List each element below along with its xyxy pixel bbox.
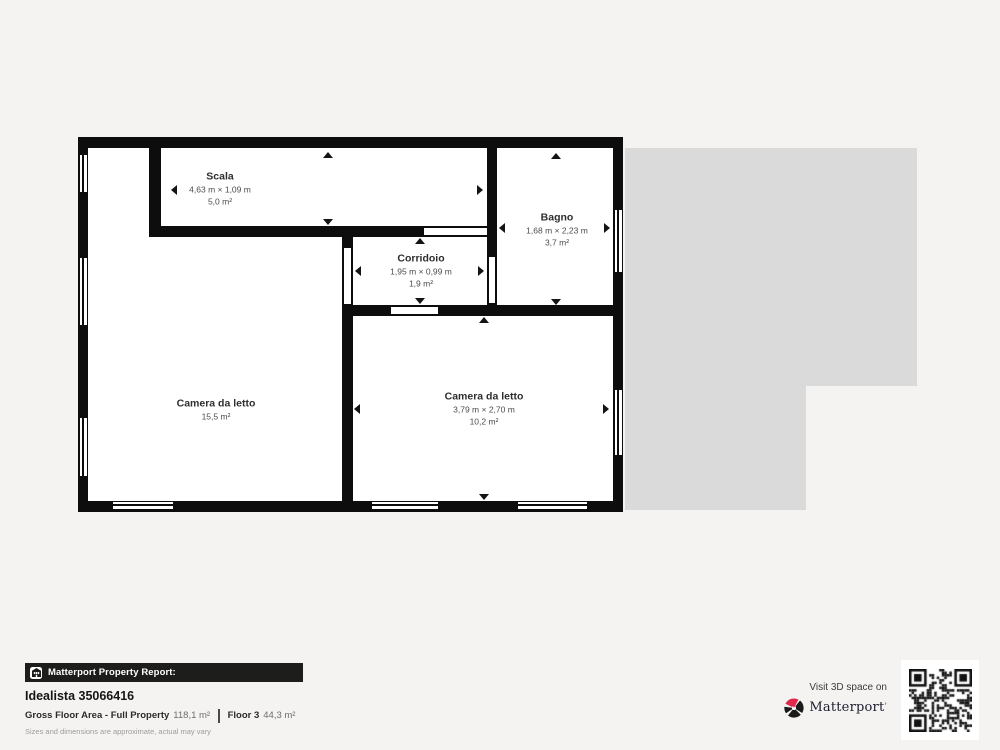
room-area: 15,5 m² (177, 411, 256, 423)
building-icon-glyph (32, 668, 41, 677)
window-symbol (518, 502, 587, 509)
window-symbol (113, 502, 173, 509)
room-label-scala: Scala 4,63 m × 1,09 m 5,0 m² (189, 171, 251, 208)
dim-arrow-left-icon (499, 223, 505, 233)
room-label-bagno: Bagno 1,68 m × 2,23 m 3,7 m² (526, 212, 588, 249)
room-dimensions: 1,68 m × 2,23 m (526, 225, 588, 237)
window-symbol (372, 502, 438, 509)
floor-label: Floor 3 (228, 710, 260, 721)
window-symbol (615, 210, 622, 272)
door-opening-corridor-left (344, 248, 351, 304)
window-symbol (80, 258, 87, 325)
matterport-wordmark: Matterport› (809, 700, 887, 715)
building-mass-right (806, 148, 917, 386)
floor-plan: Scala 4,63 m × 1,09 m 5,0 m² Bagno 1,68 … (0, 0, 1000, 650)
matterport-floorplan-page: { "plan": { "rooms": [ { "name": "Scala"… (0, 0, 1000, 750)
dim-arrow-right-icon (603, 404, 609, 414)
report-title: Matterport Property Report: (48, 667, 176, 678)
room-area: 5,0 m² (189, 196, 251, 208)
dim-arrow-right-icon (478, 266, 484, 276)
dim-arrow-left-icon (171, 185, 177, 195)
gross-floor-area-label: Gross Floor Area - Full Property (25, 710, 169, 721)
dim-arrow-up-icon (479, 317, 489, 323)
room-dimensions: 1,95 m × 0,99 m (390, 266, 452, 278)
door-opening-bedroom2 (391, 307, 438, 314)
room-name: Camera da letto (177, 398, 256, 411)
floor-area-value: 44,3 m² (263, 710, 295, 721)
area-summary-line: Gross Floor Area - Full Property 118,1 m… (25, 708, 295, 723)
room-area: 3,7 m² (526, 237, 588, 249)
building-mass-left (625, 148, 806, 510)
matterport-brand: Matterport› (700, 697, 887, 718)
window-symbol (615, 390, 622, 455)
dim-arrow-right-icon (604, 223, 610, 233)
room-area: 1,9 m² (390, 278, 452, 290)
dim-arrow-right-icon (477, 185, 483, 195)
dim-arrow-up-icon (323, 152, 333, 158)
dim-arrow-left-icon (354, 404, 360, 414)
gross-floor-area-value: 118,1 m² (173, 710, 210, 721)
room-label-corridoio: Corridoio 1,95 m × 0,99 m 1,9 m² (390, 253, 452, 290)
room-area: 10,2 m² (445, 416, 524, 428)
disclaimer-text: Sizes and dimensions are approximate, ac… (25, 727, 211, 736)
dim-arrow-down-icon (551, 299, 561, 305)
visit-3d-space-text: Visit 3D space on (700, 682, 887, 693)
separator-divider (218, 709, 220, 723)
room-dimensions: 4,63 m × 1,09 m (189, 184, 251, 196)
window-symbol (80, 155, 87, 192)
room-dimensions: 3,79 m × 2,70 m (445, 404, 524, 416)
dim-arrow-down-icon (415, 298, 425, 304)
property-id: Idealista 35066416 (25, 689, 134, 703)
dim-arrow-left-icon (355, 266, 361, 276)
room-name: Camera da letto (445, 391, 524, 404)
dim-arrow-down-icon (323, 219, 333, 225)
window-symbol (80, 418, 87, 476)
wall-scala-left (149, 148, 161, 237)
qr-code-pattern (909, 669, 972, 732)
building-icon (30, 667, 42, 679)
dim-arrow-up-icon (415, 238, 425, 244)
room-name: Corridoio (390, 253, 452, 266)
dim-arrow-down-icon (479, 494, 489, 500)
qr-code (901, 660, 979, 740)
room-label-camera-left: Camera da letto 15,5 m² (177, 398, 256, 423)
wall-corridor-bottom (342, 305, 613, 316)
door-opening-bagno (489, 257, 495, 303)
report-title-bar: Matterport Property Report: (25, 663, 303, 682)
door-opening-scala (424, 228, 487, 235)
room-name: Scala (189, 171, 251, 184)
room-label-camera-right: Camera da letto 3,79 m × 2,70 m 10,2 m² (445, 391, 524, 428)
matterport-logo-icon (784, 698, 804, 718)
room-name: Bagno (526, 212, 588, 225)
dim-arrow-up-icon (551, 153, 561, 159)
